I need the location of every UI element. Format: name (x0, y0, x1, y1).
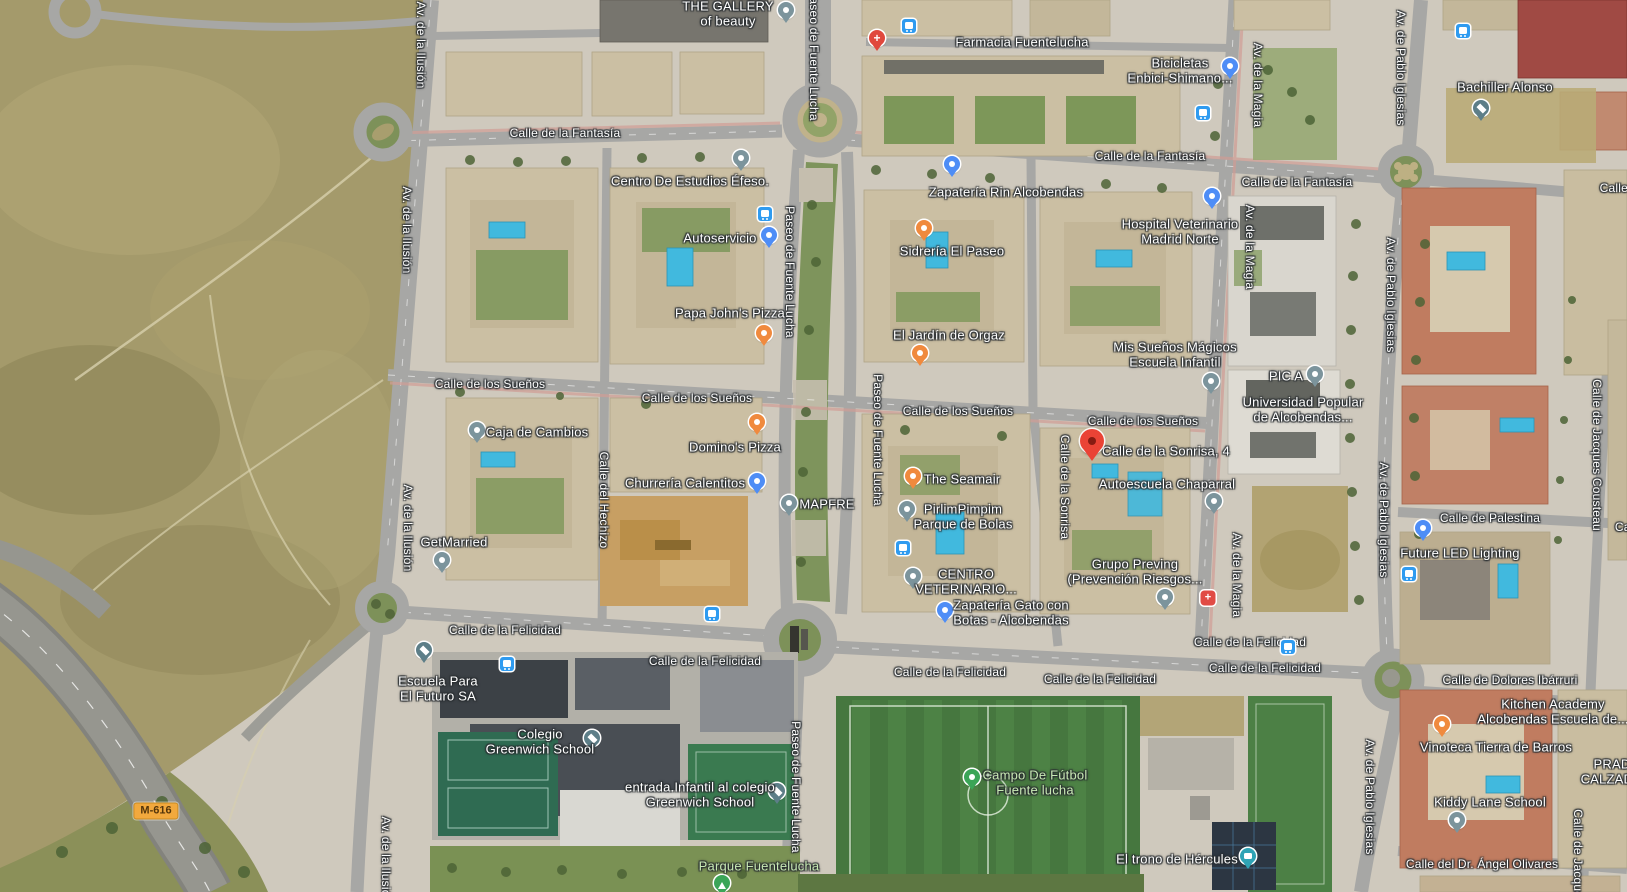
transit-station-icon[interactable] (1196, 106, 1210, 120)
road-label: Paseo de Fuente Lucha (871, 374, 885, 506)
pin-glyph (754, 478, 760, 484)
road-label: Av. de la Ilusión (400, 186, 414, 273)
poi-label[interactable]: Zapatería Rin Alcobendas (929, 184, 1083, 199)
pin-glyph (783, 7, 789, 13)
poi-label[interactable]: Hospital Veterinario Madrid Norte (1122, 217, 1239, 248)
pharmacy-pin-icon[interactable]: + (869, 30, 885, 46)
poi-label[interactable]: Zapatería Gato con Botas - Alcobendas (953, 598, 1069, 629)
road-label: Calle del Dr. Ángel Olivares (1406, 857, 1558, 871)
poi-label[interactable]: Autoescuela Chaparral (1099, 476, 1235, 491)
bus-glyph (905, 22, 913, 29)
pin-glyph (1208, 378, 1214, 384)
pin-glyph (419, 645, 429, 655)
pin-glyph: + (869, 30, 885, 46)
tree-pin-icon[interactable] (714, 875, 730, 891)
road-label: Calle de la Sonrisa (1058, 435, 1072, 540)
poi-label[interactable]: The Seamair (924, 471, 1001, 486)
poi-label[interactable]: Centro De Estudios Éfeso. (611, 173, 769, 188)
poi-label[interactable]: GetMarried (420, 534, 487, 549)
cart-pin-icon[interactable] (761, 227, 777, 243)
road-label: Av. de Pablo Iglesias (1394, 10, 1408, 125)
poi-label[interactable]: Domino's Pizza (689, 439, 781, 454)
pin-glyph (1454, 817, 1460, 823)
bus-glyph (1284, 643, 1292, 650)
generic-pin-icon[interactable] (778, 2, 794, 18)
road-label: Calle de la Fantasía (1095, 149, 1206, 163)
road-label: Calle de los Sueños (642, 391, 753, 405)
bus-glyph (899, 544, 907, 551)
road-label: Av. de la Ilusión (414, 1, 428, 88)
road-label: Calle de Jacques Cousteau (1571, 809, 1585, 892)
bus-glyph (761, 210, 769, 217)
road-label: Calle de Palestina (1615, 520, 1627, 534)
generic-pin-icon[interactable] (1206, 493, 1222, 509)
pin-glyph (1476, 103, 1486, 113)
road-label: Calle de la Fantasía (1600, 181, 1627, 195)
pin-glyph (949, 161, 955, 167)
pin-glyph (910, 473, 916, 479)
pin-glyph (969, 774, 975, 780)
poi-label[interactable]: El trono de Hércules (1116, 851, 1238, 866)
bus-glyph (708, 610, 716, 617)
pin-glyph (1420, 525, 1426, 531)
transit-station-icon[interactable] (896, 541, 910, 555)
transit-station-icon[interactable] (758, 207, 772, 221)
road-label: Av. de Pablo Iglesias (1363, 739, 1377, 854)
pin-glyph (1244, 853, 1252, 859)
poi-label[interactable]: Universidad Popular de Alcobendas... (1243, 395, 1364, 426)
road-label: Calle de Dolores Ibárruri (1442, 673, 1577, 687)
satellite-map-viewport[interactable]: M-616 Calle de la FantasíaCalle de la Fa… (0, 0, 1627, 892)
poi-label[interactable]: CENTRO VETERINARIO... (915, 567, 1017, 598)
transit-station-icon[interactable] (902, 19, 916, 33)
poi-label[interactable]: Papa John's Pizza (675, 305, 785, 320)
road-label: Av. de Pablo Iglesias (1384, 237, 1398, 352)
generic-pin-icon[interactable] (733, 150, 749, 166)
transit-station-icon[interactable] (1281, 640, 1295, 654)
road-label: Calle de la Felicidad (649, 654, 761, 668)
pin-glyph (1162, 594, 1168, 600)
generic-pin-icon[interactable] (1449, 812, 1465, 828)
pin-glyph (439, 557, 445, 563)
road-label: Calle de la Fantasía (1242, 175, 1353, 189)
poi-label[interactable]: Bicicletas Enbici-Shimano... (1127, 56, 1232, 87)
park-pin-icon[interactable] (964, 769, 980, 785)
bus-glyph (1459, 27, 1467, 34)
pin-glyph (761, 330, 767, 336)
bus-glyph (1199, 109, 1207, 116)
health-poi-icon[interactable]: + (1201, 591, 1216, 606)
pin-glyph (1211, 498, 1217, 504)
generic-pin-icon[interactable] (469, 422, 485, 438)
food-pin-icon[interactable] (912, 345, 928, 361)
poi-label[interactable]: Escuela Para El Futuro SA (398, 674, 478, 705)
road-label: Calle de la Fantasía (510, 126, 621, 140)
road-label: Calle de la Felicidad (449, 623, 561, 637)
pin-glyph (1312, 371, 1318, 377)
bus-glyph (503, 660, 511, 667)
road-label: Calle de Jacques Cousteau (1590, 379, 1604, 531)
road-label: Av. de Pablo Iglesias (1377, 462, 1391, 577)
education-pin-icon[interactable] (416, 642, 432, 658)
pin-glyph (1439, 721, 1445, 727)
poi-label[interactable]: El Jardín de Orgaz (893, 327, 1005, 342)
food-pin-icon[interactable] (749, 414, 765, 430)
poi-label[interactable]: Parque Fuentelucha (699, 858, 820, 873)
shopping-pin-icon[interactable] (937, 602, 953, 618)
road-label: Av. de la Ilusión (401, 484, 415, 571)
food-pin-icon[interactable] (905, 468, 921, 484)
poi-label[interactable]: Colegio Greenwich School (486, 727, 595, 758)
road-label: Av. de la Magia (1230, 533, 1244, 618)
poi-label[interactable]: Bachiller Alonso (1457, 79, 1553, 94)
poi-label[interactable]: entrada.Infantil al colegio Greenwich Sc… (625, 780, 775, 811)
pin-glyph (738, 155, 744, 161)
shopping-pin-icon[interactable] (749, 473, 765, 489)
pin-glyph (904, 506, 910, 512)
shopping-pin-icon[interactable] (1415, 520, 1431, 536)
pin-glyph (786, 500, 792, 506)
poi-label[interactable]: Kiddy Lane School (1434, 794, 1546, 809)
transit-station-icon[interactable] (1402, 567, 1416, 581)
road-label: Av. de la Magia (1243, 205, 1257, 290)
shopping-pin-icon[interactable] (944, 156, 960, 172)
poi-label[interactable]: Caja de Cambios (486, 424, 589, 439)
transit-station-icon[interactable] (1456, 24, 1470, 38)
pin-glyph (942, 607, 948, 613)
generic-pin-icon[interactable] (1157, 589, 1173, 605)
transit-station-icon[interactable] (500, 657, 514, 671)
poi-label[interactable]: MAPFRE (799, 496, 854, 511)
generic-pin-icon[interactable] (1307, 366, 1323, 382)
bus-glyph (1405, 570, 1413, 577)
pin-glyph (917, 350, 923, 356)
poi-label[interactable]: Campo De Fútbol Fuente lucha (983, 768, 1088, 799)
road-badge-m616: M-616 (133, 803, 178, 820)
road-label: Calle de Palestina (1440, 511, 1540, 525)
camera-pin-icon[interactable] (1240, 848, 1256, 864)
destination-address-label[interactable]: Calle de la Sonrisa, 4 (1102, 443, 1230, 458)
road-label: Calle de los Sueños (435, 377, 546, 391)
road-label: Paseo de Fuente Lucha (783, 206, 797, 338)
poi-label[interactable]: Sidrería El Paseo (900, 243, 1005, 258)
road-label: Calle de la Felicidad (894, 665, 1006, 679)
poi-label[interactable]: PirlimPimpim Parque de Bolas (913, 502, 1012, 533)
pin-glyph (921, 225, 927, 231)
pin-glyph (474, 427, 480, 433)
generic-pin-icon[interactable] (434, 552, 450, 568)
education-pin-icon[interactable] (1473, 100, 1489, 116)
road-label: Calle de la Felicidad (1044, 672, 1156, 686)
poi-label[interactable]: Grupo Preving (Prevención Riesgos... (1067, 557, 1202, 588)
generic-pin-icon[interactable] (781, 495, 797, 511)
road-label: Av. de la Magia (1251, 43, 1265, 128)
pin-glyph (754, 419, 760, 425)
poi-label[interactable]: THE GALLERY of beauty (682, 0, 774, 29)
road-label: Paseo de Fuente Lucha (789, 721, 803, 853)
destination-marker-icon[interactable] (1080, 429, 1104, 453)
road-label: Calle de la Felicidad (1209, 661, 1321, 675)
food-pin-icon[interactable] (1434, 716, 1450, 732)
transit-station-icon[interactable] (705, 607, 719, 621)
poi-label[interactable]: Autoservicio (683, 230, 756, 245)
shopping-pin-icon[interactable] (1204, 188, 1220, 204)
poi-label[interactable]: PRAD CALZADO (1581, 757, 1627, 788)
pin-glyph (766, 232, 772, 238)
road-label: Paseo de Fuente Lucha (807, 0, 821, 121)
poi-label[interactable]: Farmacia Fuentelucha (955, 34, 1088, 49)
poi-label[interactable]: Vinoteca Tierra de Barros (1420, 739, 1572, 754)
poi-label[interactable]: Mis Sueños Mágicos Escuela Infantil (1113, 340, 1237, 371)
road-label: Calle de los Sueños (903, 404, 1014, 418)
poi-label[interactable]: PIC A (1269, 368, 1303, 383)
road-label: Calle del Hechizo (597, 452, 611, 549)
generic-pin-icon[interactable] (1203, 373, 1219, 389)
food-pin-icon[interactable] (756, 325, 772, 341)
road-label: Calle de los Sueños (1088, 414, 1199, 428)
map-label-layer: M-616 Calle de la FantasíaCalle de la Fa… (0, 0, 1627, 892)
poi-label[interactable]: Churrería Calentitos (625, 475, 745, 490)
poi-label[interactable]: Kitchen Academy Alcobendas Escuela de... (1477, 697, 1627, 728)
road-label: Av. de la Ilusión (379, 816, 393, 892)
pin-glyph (718, 878, 726, 889)
food-pin-icon[interactable] (916, 220, 932, 236)
pin-glyph (1209, 193, 1215, 199)
poi-label[interactable]: Future LED Lighting (1400, 545, 1519, 560)
